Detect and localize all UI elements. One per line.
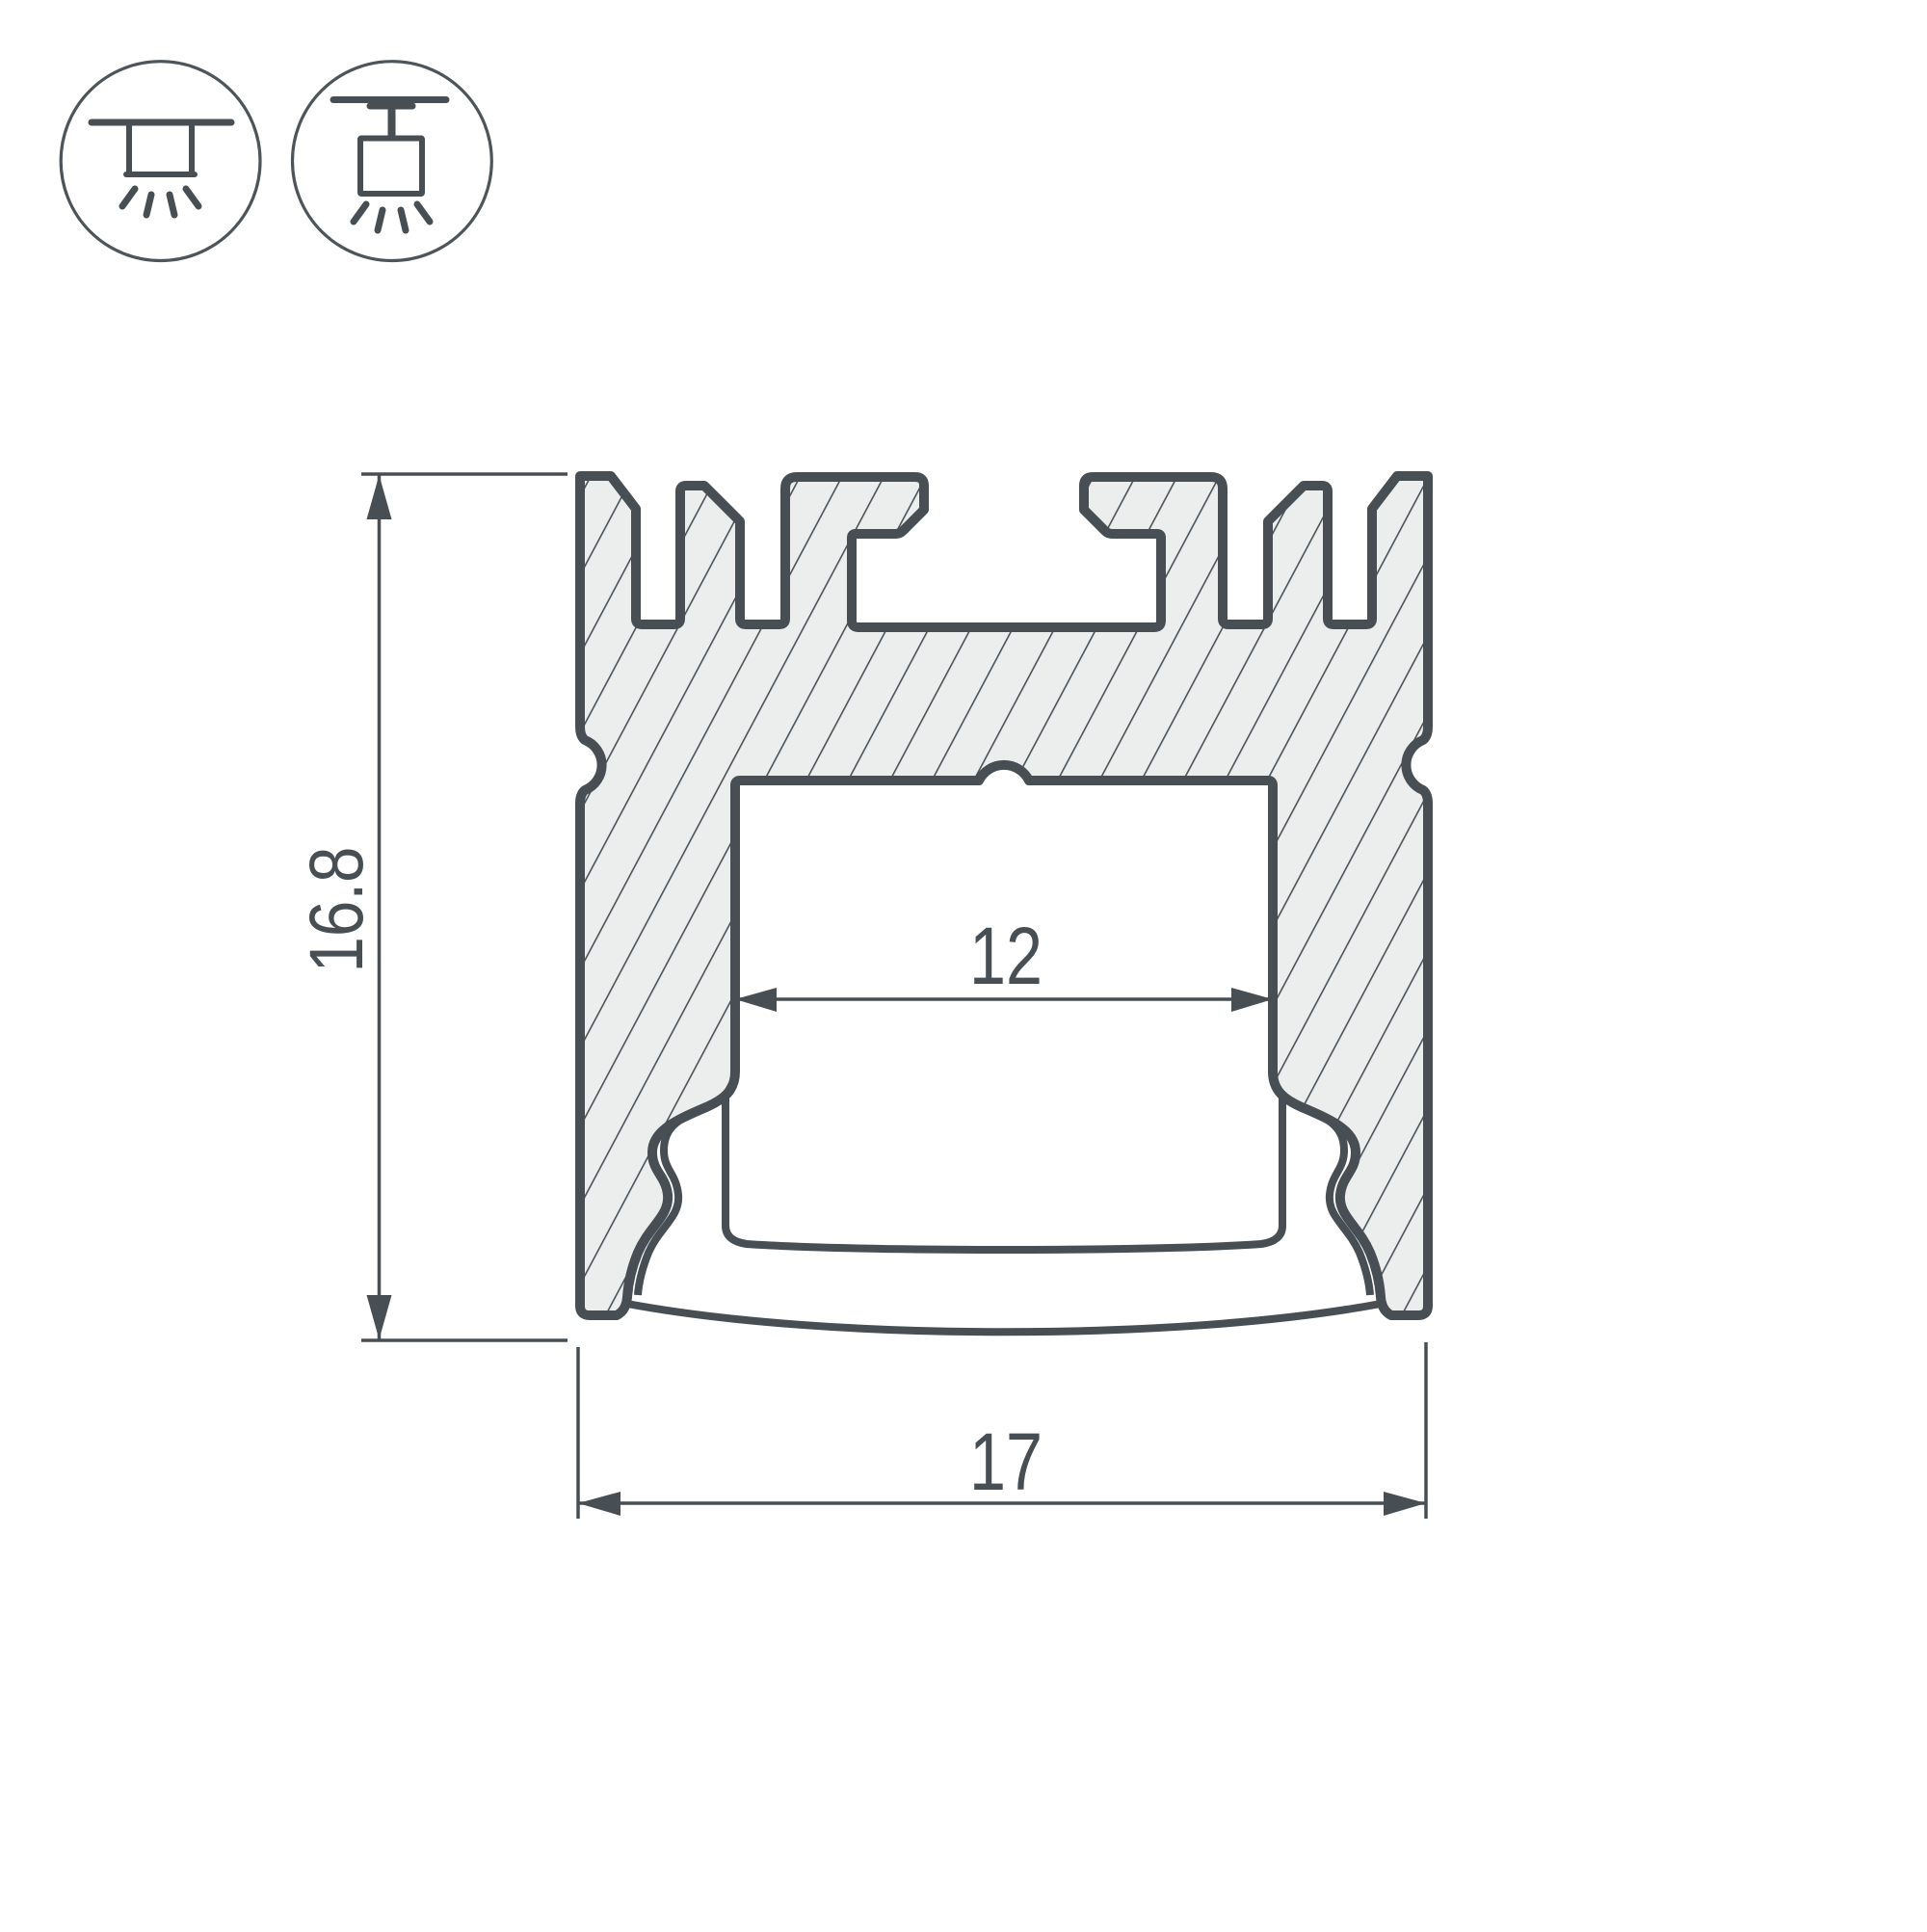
svg-text:17: 17 xyxy=(969,1416,1043,1507)
svg-text:12: 12 xyxy=(969,911,1043,1001)
svg-text:16.8: 16.8 xyxy=(293,847,379,973)
